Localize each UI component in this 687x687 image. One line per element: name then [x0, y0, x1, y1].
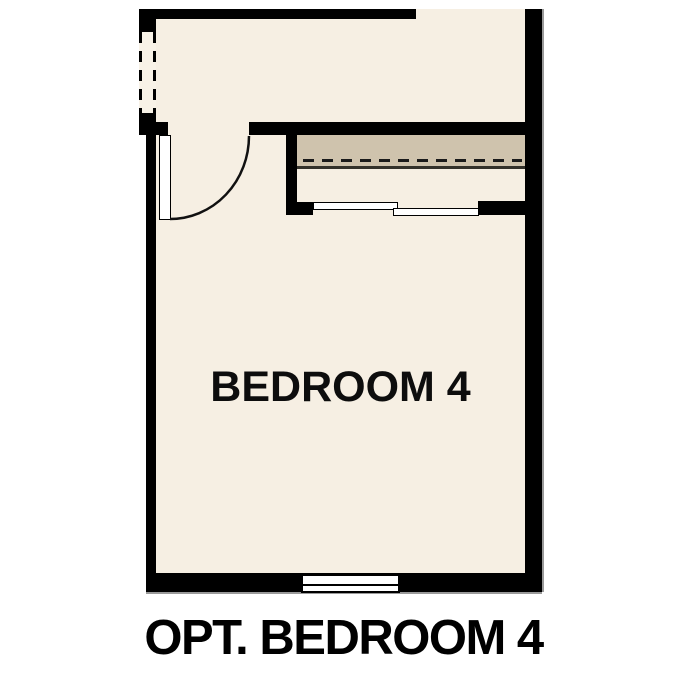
- closet-sliding-door-panel-rear: [313, 202, 398, 210]
- door-jamb-block: [139, 113, 156, 135]
- window-symbol: [301, 574, 400, 593]
- wall-right-shadow-edge: [542, 9, 544, 592]
- opening-dash-line-left: [139, 32, 142, 113]
- room-floor: [146, 9, 533, 583]
- closet-sliding-door-panel-front: [393, 208, 479, 216]
- wall-left: [146, 135, 156, 592]
- plan-caption: OPT. BEDROOM 4: [0, 614, 687, 663]
- closet-shelf: [297, 135, 525, 169]
- room-label: BEDROOM 4: [156, 366, 525, 409]
- door-leaf: [159, 135, 171, 220]
- wall-closet-bottom-left: [286, 202, 313, 215]
- window-center-line: [303, 584, 398, 586]
- cased-opening-dashed: [139, 32, 156, 113]
- wall-closet-top: [249, 122, 541, 135]
- closet-rod-dashed-line: [303, 159, 522, 162]
- wall-top-left-corner: [139, 9, 156, 32]
- opening-dash-line-right: [153, 32, 156, 113]
- door-jamb-extension: [155, 122, 168, 135]
- floor-plan-image: BEDROOM 4 OPT. BEDROOM 4: [0, 0, 687, 687]
- wall-right: [525, 9, 542, 592]
- wall-top: [139, 9, 416, 19]
- wall-closet-bottom-right: [478, 201, 525, 215]
